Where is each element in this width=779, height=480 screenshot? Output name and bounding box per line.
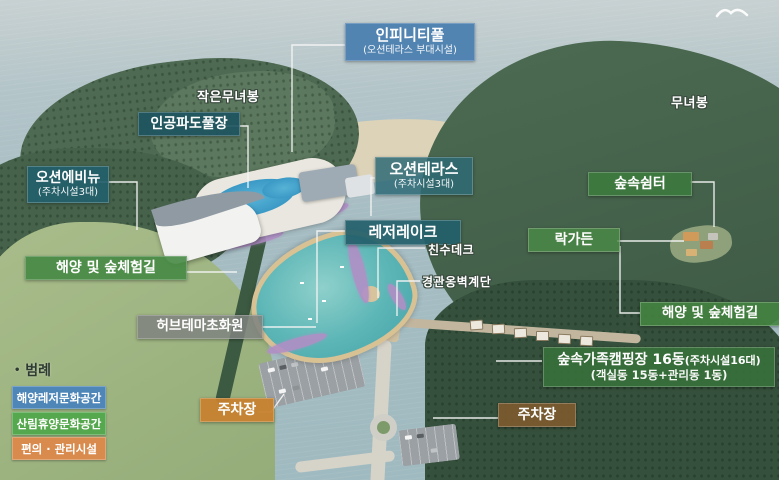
lake-boat bbox=[340, 266, 344, 268]
roundabout-island bbox=[377, 421, 390, 434]
label-infinity-pool-title: 인피니티풀 bbox=[375, 26, 444, 44]
label-camping-sub: (객실동 15동+관리동 1동) bbox=[550, 369, 768, 382]
label-rock-garden: 락가든 bbox=[528, 228, 620, 252]
lake-boat bbox=[300, 282, 304, 284]
label-parking-right: 주차장 bbox=[498, 403, 576, 427]
label-wave-pool-title: 인공파도풀장 bbox=[150, 116, 227, 132]
legend-item-forest-label: 산림휴양문화공간 bbox=[17, 416, 102, 432]
label-forest-shelter: 숲속쉼터 bbox=[588, 172, 692, 196]
label-rock-garden-title: 락가든 bbox=[555, 232, 594, 248]
label-parking-right-title: 주차장 bbox=[518, 407, 557, 423]
legend-title-text: 범례 bbox=[25, 363, 51, 379]
rock-garden-building bbox=[708, 233, 718, 240]
label-camping-paren: (주차시설16대) bbox=[685, 354, 761, 367]
rock-garden-building bbox=[683, 232, 699, 241]
label-infinity-pool-sub: (오션테라스 부대시설) bbox=[354, 45, 466, 57]
label-trail-right-title: 해양 및 숲체험길 bbox=[662, 305, 758, 321]
rock-garden-building bbox=[686, 249, 697, 256]
legend-item-facility: 편의 · 관리시설 bbox=[12, 437, 106, 460]
label-herb-garden: 허브테마초화원 bbox=[137, 315, 263, 339]
camp-cabin bbox=[492, 324, 506, 335]
label-peak-main: 무녀봉 bbox=[671, 92, 708, 111]
label-ocean-terrace-title: 오션테라스 bbox=[389, 160, 458, 178]
label-trail-left: 해양 및 숲체험길 bbox=[25, 256, 187, 280]
label-camping: 숲속가족캠핑장 16동(주차시설16대) (객실동 15동+관리동 1동) bbox=[543, 347, 775, 387]
camp-cabin bbox=[514, 328, 527, 338]
rock-garden-building bbox=[700, 241, 713, 249]
label-parking-left-title: 주차장 bbox=[218, 402, 257, 418]
lake-boat bbox=[308, 318, 312, 320]
label-ocean-terrace: 오션테라스 (주차시설3대) bbox=[375, 157, 473, 195]
legend-item-marine-label: 해양레저문화공간 bbox=[17, 390, 102, 406]
label-infinity-pool: 인피니티풀 (오션테라스 부대시설) bbox=[345, 23, 475, 61]
label-trail-right: 해양 및 숲체험길 bbox=[640, 302, 779, 326]
legend-title: • 범례 bbox=[14, 360, 51, 380]
label-forest-shelter-title: 숲속쉼터 bbox=[614, 176, 666, 192]
label-ocean-avenue-title: 오션에비뉴 bbox=[36, 170, 100, 186]
label-ocean-avenue: 오션에비뉴 (주차시설3대) bbox=[27, 166, 109, 203]
camp-cabin bbox=[558, 334, 571, 344]
parking-lot-east bbox=[398, 424, 460, 467]
label-peak-small: 작은무녀봉 bbox=[197, 86, 259, 105]
label-chinsu-deck: 친수데크 bbox=[428, 241, 474, 258]
camp-cabin bbox=[580, 336, 594, 347]
label-camping-title: 숲속가족캠핑장 16동 bbox=[557, 352, 684, 368]
label-leisure-lake-title: 레저레이크 bbox=[368, 223, 437, 241]
legend-item-forest: 산림휴양문화공간 bbox=[12, 412, 106, 435]
resort-site-map: 인피니티풀 (오션테라스 부대시설) 작은무녀봉 인공파도풀장 오션에비뉴 (주… bbox=[0, 0, 779, 480]
legend-bullet-icon: • bbox=[14, 365, 20, 376]
label-wave-pool: 인공파도풀장 bbox=[138, 112, 240, 136]
camp-cabin bbox=[536, 331, 549, 341]
legend-item-facility-label: 편의 · 관리시설 bbox=[21, 441, 97, 457]
label-landscape-stairs: 경관옹벽계단 bbox=[422, 273, 491, 290]
seagull-icon bbox=[714, 2, 750, 26]
label-ocean-avenue-sub: (주차시설3대) bbox=[32, 187, 104, 199]
camp-cabin bbox=[470, 320, 484, 331]
label-herb-garden-title: 허브테마초화원 bbox=[157, 318, 244, 334]
label-trail-left-title: 해양 및 숲체험길 bbox=[56, 260, 156, 276]
label-parking-left: 주차장 bbox=[200, 398, 274, 422]
lake-boat bbox=[322, 300, 326, 302]
legend-item-marine: 해양레저문화공간 bbox=[12, 386, 106, 409]
label-ocean-terrace-sub: (주차시설3대) bbox=[380, 179, 468, 191]
